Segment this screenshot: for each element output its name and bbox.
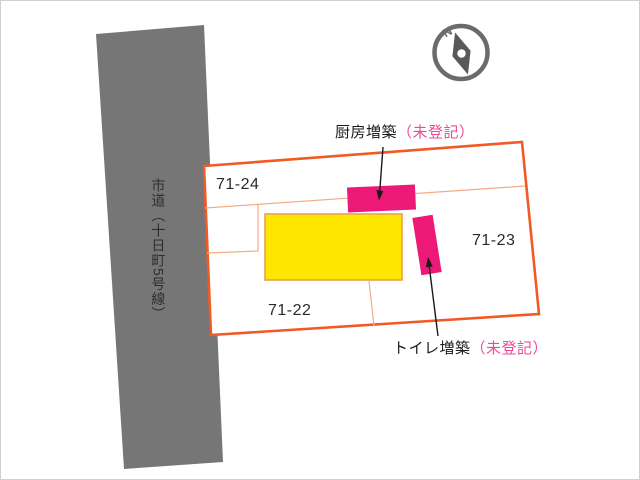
main-building: [265, 214, 402, 280]
road-label: 市道（十日町5号線）: [150, 178, 165, 340]
kitchen-extension-name: 厨房増築: [335, 124, 397, 141]
kitchen-unregistered-status: （未登記）: [397, 124, 475, 141]
parcel-number-71-23: 71-23: [472, 232, 515, 250]
parcel-number-71-22: 71-22: [268, 302, 311, 320]
toilet-extension-label: トイレ増築（未登記）: [393, 337, 548, 358]
parcel-number-71-24: 71-24: [216, 176, 259, 194]
site-plan: 市道（十日町5号線） N 71-24 71-23 71-22 厨房増築（未登記）…: [0, 0, 640, 480]
toilet-extension-name: トイレ増築: [393, 340, 471, 357]
compass-icon: [435, 26, 488, 79]
kitchen-extension-label: 厨房増築（未登記）: [335, 121, 475, 142]
toilet-unregistered-status: （未登記）: [471, 340, 549, 357]
kitchen-extension: [347, 185, 416, 213]
site-plan-drawing: [1, 1, 640, 480]
